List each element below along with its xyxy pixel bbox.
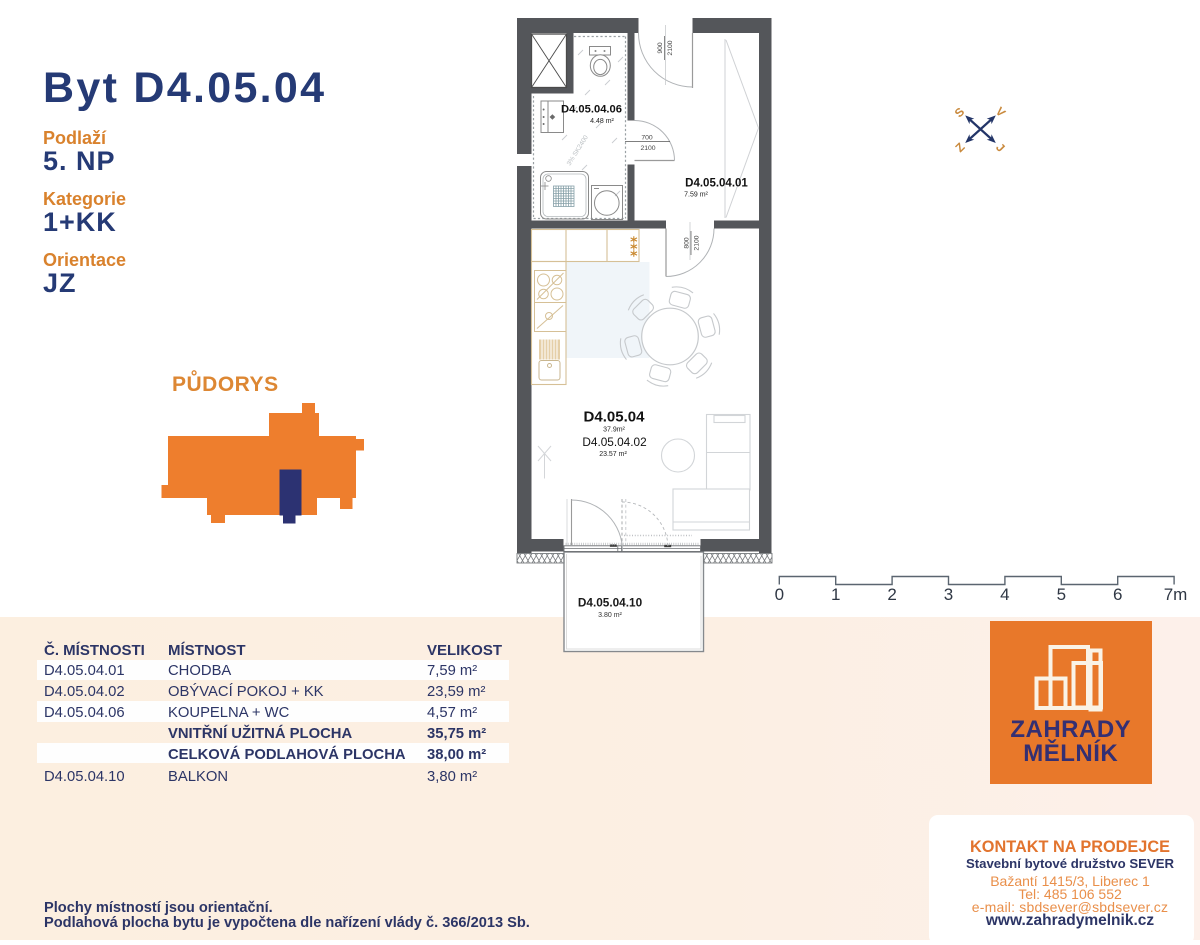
svg-text:2: 2 xyxy=(887,585,896,604)
svg-text:23.57 m²: 23.57 m² xyxy=(599,451,627,458)
svg-text:2100: 2100 xyxy=(640,145,655,152)
svg-text:D4.05.04.01: D4.05.04.01 xyxy=(685,178,748,190)
svg-text:S: S xyxy=(952,105,968,121)
svg-text:5: 5 xyxy=(1057,585,1066,604)
svg-text:D4.05.04: D4.05.04 xyxy=(584,409,646,426)
svg-text:6: 6 xyxy=(1113,585,1122,604)
svg-text:37.9m²: 37.9m² xyxy=(603,427,625,434)
svg-text:900: 900 xyxy=(657,42,664,54)
svg-text:V: V xyxy=(993,104,1009,120)
svg-text:800: 800 xyxy=(684,237,691,249)
svg-text:7m: 7m xyxy=(1164,585,1188,604)
svg-text:4: 4 xyxy=(1000,585,1009,604)
svg-text:700: 700 xyxy=(641,135,653,142)
svg-text:4.48 m²: 4.48 m² xyxy=(590,118,614,125)
svg-text:2100: 2100 xyxy=(667,40,674,55)
svg-text:D4.05.04.02: D4.05.04.02 xyxy=(582,435,646,449)
svg-text:D4.05.04.10: D4.05.04.10 xyxy=(578,596,643,610)
svg-text:0: 0 xyxy=(775,585,784,604)
svg-text:3: 3 xyxy=(944,585,953,604)
svg-text:3.80 m²: 3.80 m² xyxy=(598,612,622,619)
svg-text:3% SK2400: 3% SK2400 xyxy=(566,134,590,167)
svg-text:7.59 m²: 7.59 m² xyxy=(684,192,708,199)
svg-text:D4.05.04.06: D4.05.04.06 xyxy=(561,104,622,116)
svg-text:1: 1 xyxy=(831,585,840,604)
svg-text:Z: Z xyxy=(952,140,967,155)
svg-text:2100: 2100 xyxy=(694,235,701,250)
